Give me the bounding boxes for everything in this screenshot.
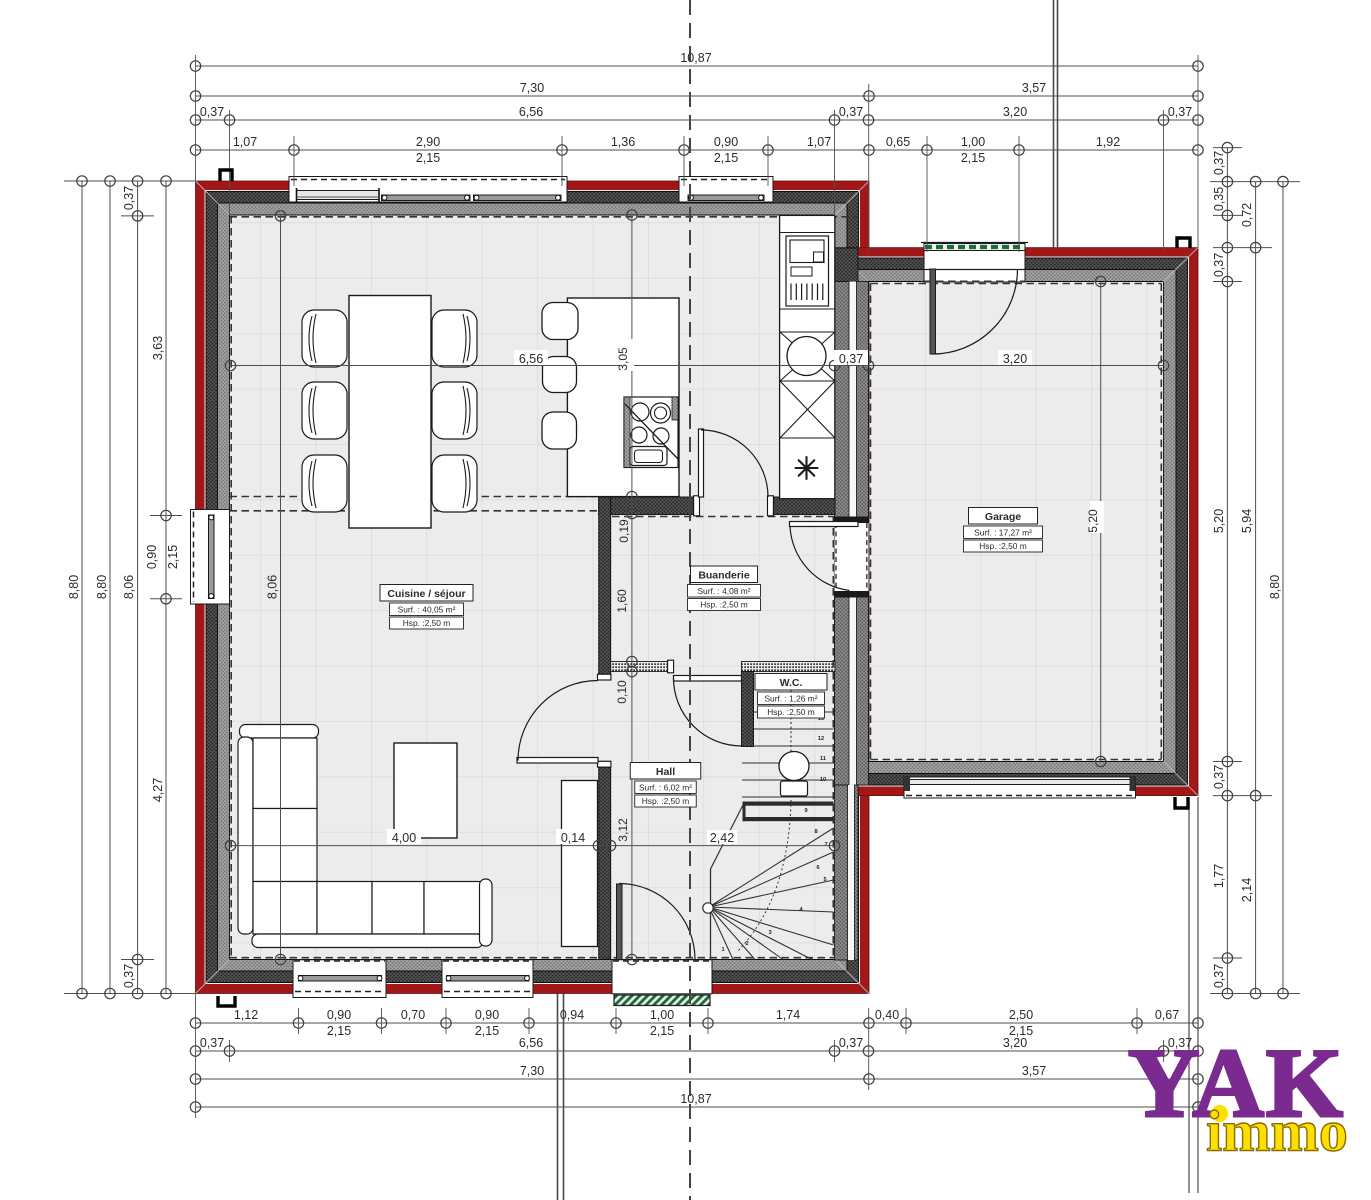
svg-text:6: 6	[816, 865, 819, 871]
svg-text:7,30: 7,30	[520, 81, 544, 95]
svg-text:0,37: 0,37	[122, 186, 136, 210]
svg-text:2,90: 2,90	[416, 135, 440, 149]
svg-text:3,57: 3,57	[1022, 1064, 1046, 1078]
svg-text:1,36: 1,36	[611, 135, 635, 149]
svg-text:Garage: Garage	[985, 511, 1021, 523]
svg-text:3,63: 3,63	[151, 336, 165, 360]
svg-text:0,19: 0,19	[617, 519, 631, 543]
svg-text:3,20: 3,20	[1003, 352, 1027, 366]
svg-text:Cuisine / séjour: Cuisine / séjour	[387, 588, 465, 600]
svg-text:9: 9	[804, 808, 807, 814]
svg-text:2,15: 2,15	[714, 151, 738, 165]
svg-text:0,37: 0,37	[839, 1036, 863, 1050]
svg-text:0,37: 0,37	[122, 964, 136, 988]
svg-text:Buanderie: Buanderie	[698, 570, 750, 582]
svg-text:0,37: 0,37	[839, 105, 863, 119]
svg-text:0,65: 0,65	[886, 135, 910, 149]
svg-text:1,00: 1,00	[961, 135, 985, 149]
svg-text:2,15: 2,15	[327, 1024, 351, 1038]
svg-text:3,05: 3,05	[616, 347, 630, 371]
svg-text:2,14: 2,14	[1240, 878, 1254, 902]
svg-text:7,30: 7,30	[520, 1064, 544, 1078]
svg-text:0,37: 0,37	[1168, 105, 1192, 119]
svg-text:8: 8	[814, 829, 817, 835]
svg-text:0,10: 0,10	[615, 680, 629, 704]
svg-text:Surf. : 1,26 m²: Surf. : 1,26 m²	[764, 694, 817, 704]
svg-text:0,94: 0,94	[560, 1008, 584, 1022]
svg-text:3,20: 3,20	[1003, 1036, 1027, 1050]
svg-text:0,72: 0,72	[1240, 203, 1254, 227]
svg-text:10,87: 10,87	[680, 1092, 711, 1106]
svg-text:0,90: 0,90	[327, 1008, 351, 1022]
svg-text:5,94: 5,94	[1240, 509, 1254, 533]
svg-text:0,37: 0,37	[1212, 253, 1226, 277]
svg-text:0,90: 0,90	[475, 1008, 499, 1022]
svg-text:0,70: 0,70	[401, 1008, 425, 1022]
svg-text:0,37: 0,37	[200, 105, 224, 119]
svg-text:3: 3	[768, 930, 771, 936]
svg-text:3,57: 3,57	[1022, 81, 1046, 95]
svg-text:W.C.: W.C.	[780, 677, 803, 689]
svg-text:1,77: 1,77	[1212, 864, 1226, 888]
svg-text:Hall: Hall	[656, 766, 675, 778]
svg-text:5: 5	[823, 877, 826, 883]
svg-text:0,40: 0,40	[875, 1008, 899, 1022]
svg-text:8,80: 8,80	[95, 575, 109, 599]
svg-text:1,12: 1,12	[234, 1008, 258, 1022]
svg-text:12: 12	[818, 736, 824, 742]
svg-text:7: 7	[824, 842, 827, 848]
svg-text:8,80: 8,80	[1268, 575, 1282, 599]
svg-text:Hsp. :2,50 m: Hsp. :2,50 m	[642, 796, 690, 806]
svg-text:1: 1	[721, 947, 724, 953]
svg-text:Surf. : 40,05 m²: Surf. : 40,05 m²	[398, 605, 456, 615]
svg-text:3,12: 3,12	[616, 818, 630, 842]
svg-text:2,15: 2,15	[961, 151, 985, 165]
svg-text:1,07: 1,07	[233, 135, 257, 149]
svg-text:0,37: 0,37	[1212, 151, 1226, 175]
svg-text:0,90: 0,90	[145, 545, 159, 569]
svg-text:8,80: 8,80	[67, 575, 81, 599]
svg-text:1,92: 1,92	[1096, 135, 1120, 149]
svg-text:8,06: 8,06	[122, 575, 136, 599]
svg-text:1,60: 1,60	[615, 589, 629, 613]
svg-text:0,37: 0,37	[839, 352, 863, 366]
svg-text:10: 10	[820, 777, 826, 783]
svg-text:0,37: 0,37	[1212, 964, 1226, 988]
svg-text:Surf. : 4,08 m²: Surf. : 4,08 m²	[697, 586, 750, 596]
svg-text:0,67: 0,67	[1155, 1008, 1179, 1022]
svg-text:2,42: 2,42	[710, 831, 734, 845]
svg-text:3,20: 3,20	[1003, 105, 1027, 119]
svg-text:11: 11	[820, 756, 826, 762]
svg-text:immo: immo	[1206, 1099, 1348, 1164]
svg-text:0,35: 0,35	[1212, 187, 1226, 211]
svg-text:2,15: 2,15	[166, 545, 180, 569]
svg-text:Hsp. :2,50 m: Hsp. :2,50 m	[403, 618, 451, 628]
svg-text:0,37: 0,37	[1212, 765, 1226, 789]
svg-text:2,15: 2,15	[416, 151, 440, 165]
svg-text:6,56: 6,56	[519, 1036, 543, 1050]
svg-text:2,50: 2,50	[1009, 1008, 1033, 1022]
svg-text:10,87: 10,87	[680, 51, 711, 65]
svg-text:6,56: 6,56	[519, 105, 543, 119]
svg-text:4,27: 4,27	[151, 778, 165, 802]
svg-text:1,74: 1,74	[776, 1008, 800, 1022]
svg-text:8,06: 8,06	[266, 575, 280, 599]
svg-text:6,56: 6,56	[519, 352, 543, 366]
svg-text:2,15: 2,15	[650, 1024, 674, 1038]
svg-text:4,00: 4,00	[392, 831, 416, 845]
svg-text:Hsp. :2,50 m: Hsp. :2,50 m	[700, 600, 748, 610]
svg-text:5,20: 5,20	[1086, 509, 1100, 533]
svg-text:Hsp. :2,50 m: Hsp. :2,50 m	[767, 707, 815, 717]
svg-text:0,14: 0,14	[561, 831, 585, 845]
svg-text:1,00: 1,00	[650, 1008, 674, 1022]
svg-text:0,37: 0,37	[200, 1036, 224, 1050]
svg-text:2: 2	[745, 941, 748, 947]
svg-text:Surf. : 17,27 m²: Surf. : 17,27 m²	[974, 528, 1032, 538]
svg-text:Hsp. :2,50 m: Hsp. :2,50 m	[979, 541, 1027, 551]
svg-text:0,90: 0,90	[714, 135, 738, 149]
svg-text:Surf. : 6,02 m²: Surf. : 6,02 m²	[639, 783, 692, 793]
svg-text:2,15: 2,15	[475, 1024, 499, 1038]
svg-text:1,07: 1,07	[807, 135, 831, 149]
svg-text:5,20: 5,20	[1212, 509, 1226, 533]
